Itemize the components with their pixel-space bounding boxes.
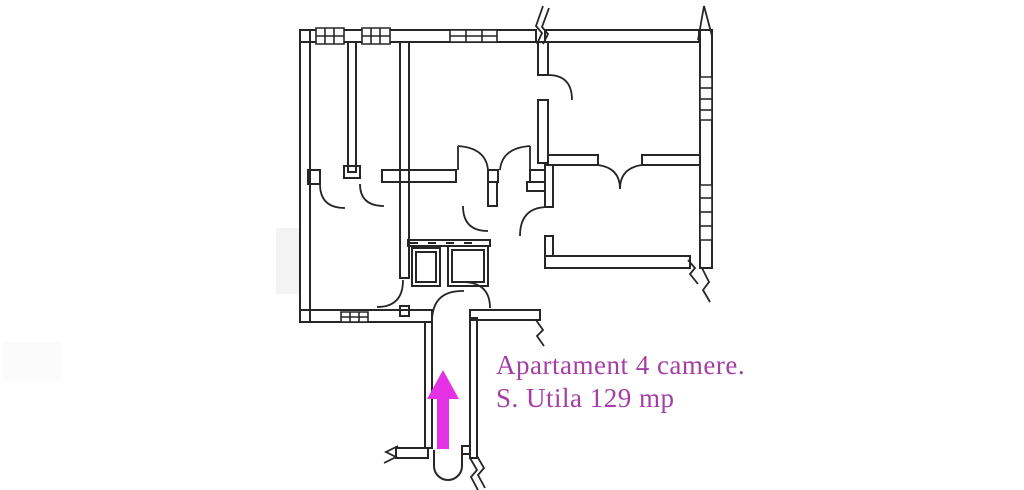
window-right-lower [700,185,712,240]
wc-box-2-inner [452,250,484,282]
double-door-left-leaf [598,165,620,189]
break-vestibule-stub [536,320,544,346]
door-arc-apartment-entrance [432,291,464,320]
door-arc-middle-room-1 [458,146,488,170]
break-right-wall-bottom [702,268,710,302]
floor-plan-page: Apartament 4 camere. S. Utila 129 mp [0,0,1024,490]
door-arc-hall-pier [463,206,488,231]
top-wall-right-segment [545,30,699,42]
door-arc-bottom-left-room [377,280,403,307]
door-arc-top-right-room [548,75,572,100]
window-small-room-b [362,28,390,44]
break-corridor-right-2 [477,456,485,488]
wall-between-small-rooms [348,42,356,172]
break-corridor-right-1 [470,458,478,490]
double-door-right-leaf [620,165,642,189]
window-bottom-left-room [341,312,368,322]
door-arc-middle-room-2 [500,146,530,170]
floor-plan-drawing: Apartament 4 camere. S. Utila 129 mp [0,0,1024,490]
window-small-room-a [316,28,344,44]
mid-right-room-west-wall-lower [545,236,553,256]
top-right-room-west-wall-upper [538,42,548,75]
corridor-left-wall [425,322,432,448]
wc-box-1-inner [416,252,436,282]
break-top-wall-mid-2 [542,8,549,44]
corridor-left-stub-wall [396,448,428,458]
caption-line-2: S. Utila 129 mp [496,383,675,413]
hall-notch-wall [527,182,545,191]
top-right-room-west-wall-lower [538,100,548,163]
door-arc-mid-right-room [520,207,548,236]
door-arc-small-room-b [360,184,384,206]
windows [316,28,712,322]
door-arc-small-room-a [320,184,345,208]
window-middle-room [450,30,497,42]
mid-right-room-west-wall-upper [545,165,553,207]
middle-room-south-wall-right [530,170,545,182]
corridor-bottom-arch [434,450,462,480]
scan-artifacts [2,228,300,382]
hall-pier-wall [488,182,497,206]
top-right-room-south-wall-right [642,155,700,165]
top-right-room-south-wall-left [548,155,598,165]
window-right-upper [700,77,712,120]
middle-room-south-wall-pier [488,170,498,182]
caption: Apartament 4 camere. S. Utila 129 mp [496,350,745,413]
door-swing-arcs [320,75,642,320]
caption-line-1: Apartament 4 camere. [496,350,745,380]
middle-room-south-wall-left [382,170,456,182]
right-block-bottom-wall [545,256,690,268]
wc-box-2-outer [448,246,488,286]
corridor-nub [462,446,470,454]
vestibule-south-wall [470,310,540,320]
corridor-right-wall [470,318,477,458]
